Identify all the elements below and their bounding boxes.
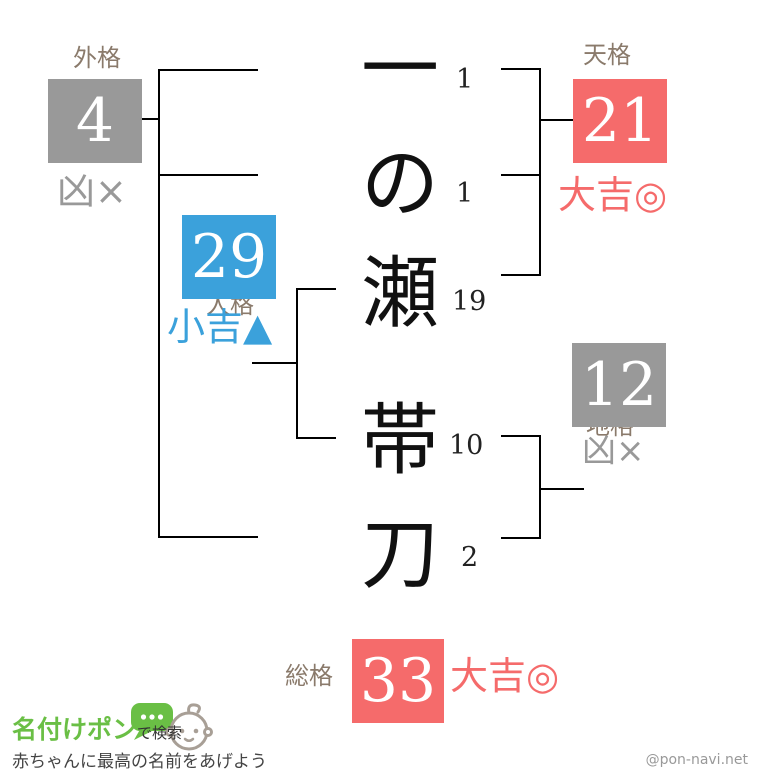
connector-line	[252, 362, 298, 364]
connector-line	[158, 69, 160, 538]
chikaku-value-box: 12	[572, 343, 666, 427]
name-char: 一	[355, 31, 445, 109]
name-fortune-diagram: 一 の 瀬 帯 刀 1 1 19 10 2 外格 4 凶× 天格 21 大吉◎ …	[0, 0, 760, 780]
soukaku-value-box: 33	[352, 639, 444, 723]
stroke-count: 19	[452, 288, 486, 315]
name-char: 帯	[355, 402, 445, 480]
connector-line	[539, 119, 574, 121]
site-logo: 名付けポンで検索	[12, 716, 182, 744]
logo-text: 名付けポン	[12, 716, 137, 744]
name-char: 刀	[355, 516, 445, 594]
connector-line	[158, 69, 258, 71]
chikaku-fortune: 凶×	[582, 434, 645, 470]
connector-line	[501, 174, 541, 176]
connector-line	[501, 435, 541, 437]
gaikaku-value-box: 4	[48, 79, 142, 163]
tagline: 赤ちゃんに最高の名前をあげよう	[12, 747, 267, 772]
gaikaku-label: 外格	[73, 46, 121, 71]
name-char: の	[355, 145, 445, 223]
stroke-count: 10	[449, 432, 483, 459]
tenkaku-label: 天格	[583, 43, 631, 68]
tenkaku-fortune: 大吉◎	[558, 176, 667, 216]
connector-line	[158, 536, 258, 538]
site-credit: @pon-navi.net	[646, 752, 748, 768]
name-char: 瀬	[355, 255, 445, 333]
jinkaku-fortune: 小吉▲	[167, 308, 272, 348]
soukaku-label: 総格	[285, 664, 333, 689]
connector-line	[142, 118, 158, 120]
connector-line	[539, 435, 541, 539]
stroke-count: 2	[461, 544, 478, 571]
logo-suffix-text: で検索	[137, 724, 182, 744]
gaikaku-fortune: 凶×	[57, 172, 127, 212]
connector-line	[501, 274, 541, 276]
connector-line	[296, 288, 336, 290]
jinkaku-value-box: 29	[182, 215, 276, 299]
connector-line	[158, 174, 258, 176]
tenkaku-value-box: 21	[573, 79, 667, 163]
connector-line	[539, 68, 541, 276]
connector-line	[501, 68, 541, 70]
connector-line	[539, 488, 584, 490]
connector-line	[501, 537, 541, 539]
stroke-count: 1	[456, 180, 473, 207]
soukaku-fortune: 大吉◎	[450, 657, 559, 697]
stroke-count: 1	[456, 66, 473, 93]
connector-line	[296, 437, 336, 439]
